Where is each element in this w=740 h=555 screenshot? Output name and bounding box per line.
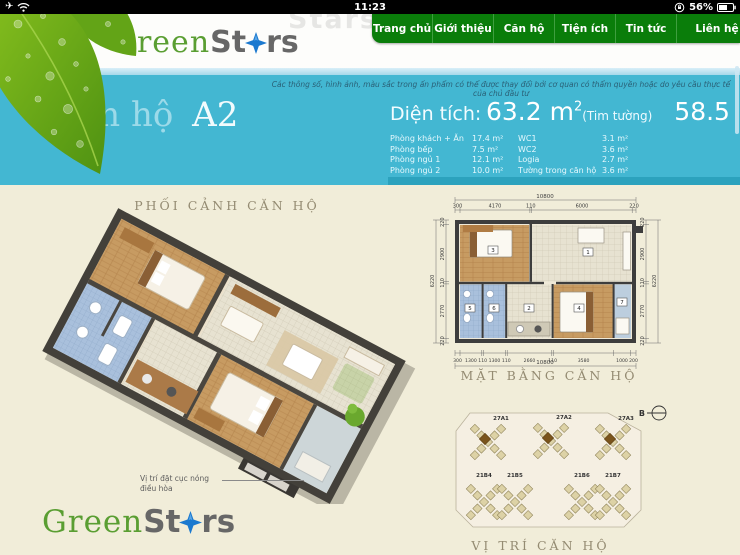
room-value: 3.6 m²: [602, 145, 646, 154]
main-nav: Trang chủ Giới thiệu Căn hộ Tiện ích Tin…: [372, 14, 740, 43]
room-label: Phòng ngủ 2: [390, 166, 472, 175]
svg-text:3: 3: [491, 248, 495, 254]
site-logo[interactable]: Green St rs: [112, 25, 299, 60]
svg-text:4170: 4170: [489, 204, 502, 210]
room-label: Phòng ngủ 1: [390, 155, 472, 164]
building-label: 21B4: [476, 473, 492, 479]
svg-text:3580: 3580: [578, 358, 590, 364]
svg-text:B: B: [639, 409, 645, 418]
room-value: 3.6 m²: [602, 166, 646, 175]
svg-text:5: 5: [468, 306, 472, 312]
compass-icon: B: [639, 406, 666, 420]
svg-text:110: 110: [526, 204, 536, 210]
room-label: Phòng khách + Ăn: [390, 134, 472, 143]
svg-text:110: 110: [640, 278, 646, 288]
room-value: 10.0 m²: [472, 166, 518, 175]
svg-text:6000: 6000: [576, 204, 589, 210]
area-gross-value: 63.2 m2: [486, 97, 582, 126]
svg-text:110: 110: [548, 358, 557, 364]
area-label: Diện tích:: [390, 103, 470, 125]
footer-logo[interactable]: Green St rs: [42, 504, 235, 540]
svg-text:6220: 6220: [430, 275, 436, 288]
ac-outdoor-unit-note: Vị trí đặt cục nóng điều hòa: [140, 474, 209, 494]
page-title: Căn hộ A2: [52, 95, 238, 135]
building-label: 21B7: [605, 473, 621, 479]
battery-icon: [717, 3, 736, 12]
svg-text:2770: 2770: [440, 305, 446, 318]
battery-percent: 56%: [689, 2, 713, 13]
header-divider-strip: [0, 68, 740, 75]
logo-watermark: Stars: [288, 14, 378, 35]
svg-text:110: 110: [502, 358, 511, 364]
svg-text:2900: 2900: [640, 248, 646, 261]
hero-band: Các thông số, hình ảnh, màu sắc trong ấn…: [0, 75, 740, 185]
spec-panel: Diện tích: 63.2 m2 (Tim tường) 58.5 m2 (…: [390, 97, 738, 175]
svg-text:6220: 6220: [652, 275, 658, 288]
clock: 11:23: [0, 2, 740, 13]
svg-text:2900: 2900: [440, 248, 446, 261]
area-net-value: 58.5 m2: [674, 97, 740, 126]
svg-text:1300: 1300: [489, 358, 501, 364]
svg-text:2660: 2660: [524, 358, 536, 364]
apartment-2d-plan: 10800 ​ 300 4170 110 6000 220 10800 300 …: [428, 190, 740, 390]
svg-text:1000: 1000: [616, 358, 628, 364]
status-bar: ✈ 11:23 56%: [0, 0, 740, 14]
svg-text:1300: 1300: [465, 358, 477, 364]
svg-text:1: 1: [586, 250, 590, 256]
svg-text:220: 220: [440, 217, 446, 227]
area-gross-note: (Tim tường): [582, 109, 652, 123]
svg-text:110: 110: [440, 278, 446, 288]
room-value: 2.7 m²: [602, 155, 646, 164]
nav-item-amenities[interactable]: Tiện ích: [555, 14, 616, 43]
svg-text:200: 200: [629, 358, 638, 364]
disclaimer-text: Các thông số, hình ảnh, màu sắc trong ấn…: [268, 80, 734, 98]
logo-star-icon: [179, 511, 202, 534]
svg-text:220: 220: [640, 217, 646, 227]
building-label: 27A2: [556, 415, 572, 421]
room-label: Tường trong căn hộ: [518, 166, 602, 175]
room-value: 17.4 m²: [472, 134, 518, 143]
svg-text:10800: 10800: [536, 194, 554, 200]
svg-text:220: 220: [640, 336, 646, 346]
site-location-plan: B 27A1 27A2 27A3 21B4 21B5 21B6 21B7: [448, 398, 740, 538]
apartment-3d-view: [32, 208, 416, 504]
page-title-prefix: Căn hộ: [52, 95, 173, 135]
nav-item-news[interactable]: Tin tức: [616, 14, 677, 43]
room-value: 3.1 m²: [602, 134, 646, 143]
svg-text:220: 220: [440, 336, 446, 346]
nav-item-apartments[interactable]: Căn hộ: [494, 14, 555, 43]
svg-text:300: 300: [453, 358, 462, 364]
logo-text-rs: rs: [266, 25, 299, 60]
rotation-lock-icon: [674, 2, 685, 13]
spec-panel-shadow: [388, 177, 740, 185]
svg-text:300: 300: [453, 204, 463, 210]
nav-item-about[interactable]: Giới thiệu: [433, 14, 494, 43]
room-label: WC2: [518, 145, 602, 154]
building-label: 21B5: [507, 473, 523, 479]
logo-text-rs: rs: [201, 504, 235, 540]
svg-text:4: 4: [577, 306, 581, 312]
room-label: Phòng bếp: [390, 145, 472, 154]
svg-text:2770: 2770: [640, 305, 646, 318]
svg-text:220: 220: [629, 204, 639, 210]
logo-text-st: St: [143, 504, 180, 540]
page-title-unit: A2: [192, 95, 238, 135]
room-area-table: Phòng khách + Ăn17.4 m²WC13.1 m² Phòng b…: [390, 134, 738, 175]
scrollbar-thumb[interactable]: [735, 66, 739, 134]
ac-note-leader-line: [222, 480, 304, 481]
logo-text-green: Green: [112, 25, 210, 60]
building-label: 27A1: [493, 416, 509, 422]
room-value: 12.1 m²: [472, 155, 518, 164]
location-heading: VỊ TRÍ CĂN HỘ: [463, 538, 618, 553]
svg-text:110: 110: [478, 358, 487, 364]
nav-item-contact[interactable]: Liên hệ: [677, 14, 740, 43]
logo-text-st: St: [210, 25, 246, 60]
svg-text:7: 7: [620, 300, 624, 306]
room-label: WC1: [518, 134, 602, 143]
svg-text:2: 2: [527, 306, 531, 312]
room-value: 7.5 m²: [472, 145, 518, 154]
logo-star-icon: [245, 32, 267, 54]
room-label: Logia: [518, 155, 602, 164]
logo-text-green: Green: [42, 504, 143, 540]
building-label: 27A3: [618, 416, 634, 422]
svg-text:6: 6: [492, 306, 496, 312]
nav-item-home[interactable]: Trang chủ: [372, 14, 433, 43]
tablet-screen: ✈ 11:23 56% Stars Green: [0, 0, 740, 555]
building-label: 21B6: [574, 473, 590, 479]
